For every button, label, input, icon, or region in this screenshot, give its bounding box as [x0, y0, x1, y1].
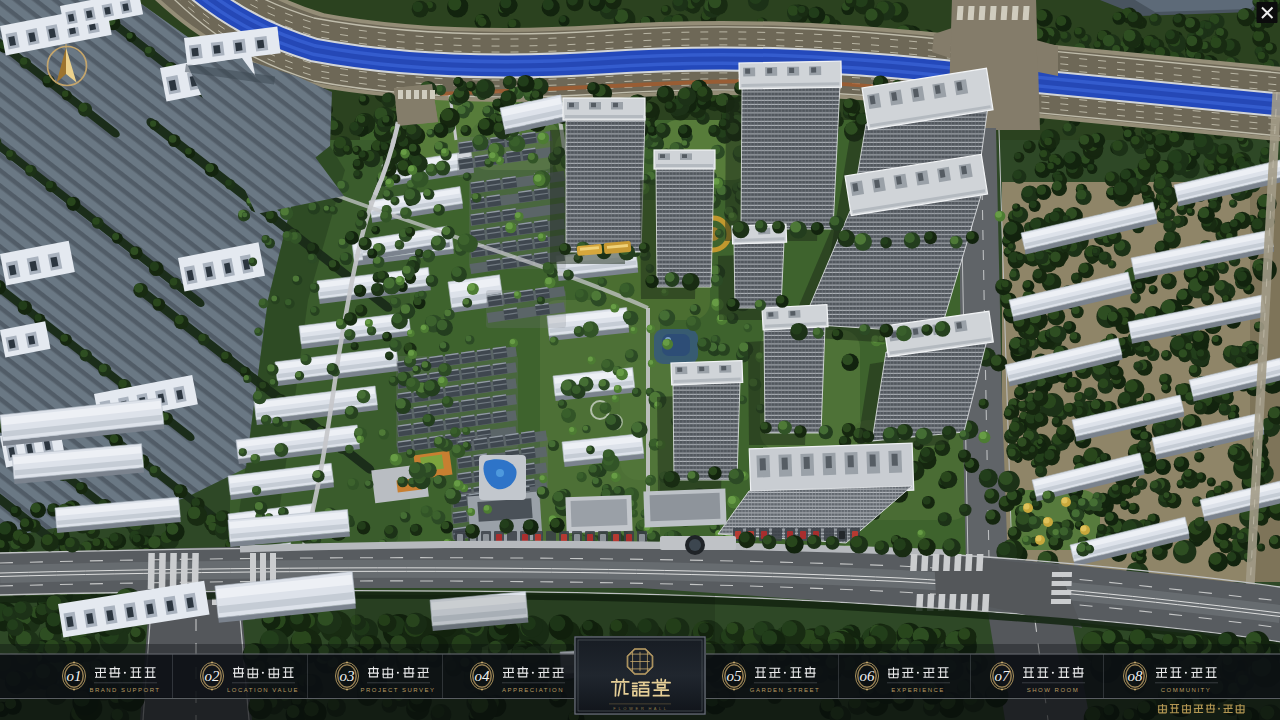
svg-text:o7: o7 — [995, 668, 1012, 684]
svg-text:SHOW ROOM: SHOW ROOM — [1027, 687, 1080, 693]
svg-text:BRAND SUPPORT: BRAND SUPPORT — [89, 687, 160, 693]
svg-text:o3: o3 — [340, 668, 355, 684]
svg-text:o2: o2 — [205, 668, 221, 684]
svg-text:o8: o8 — [1128, 668, 1144, 684]
svg-text:o6: o6 — [860, 668, 876, 684]
svg-text:LOCATION VALUE: LOCATION VALUE — [227, 687, 299, 693]
svg-text:COMMUNITY: COMMUNITY — [1161, 687, 1212, 693]
svg-text:PROJECT SURVEY: PROJECT SURVEY — [360, 687, 435, 693]
svg-text:APPRECIATION: APPRECIATION — [502, 687, 564, 693]
svg-text:F L O W E R H A L L: F L O W E R H A L L — [613, 706, 667, 711]
svg-text:EXPERIENCE: EXPERIENCE — [891, 687, 945, 693]
svg-text:GARDEN STREET: GARDEN STREET — [750, 687, 821, 693]
svg-text:o4: o4 — [475, 668, 491, 684]
svg-text:o5: o5 — [727, 668, 743, 684]
svg-text:o1: o1 — [67, 668, 82, 684]
